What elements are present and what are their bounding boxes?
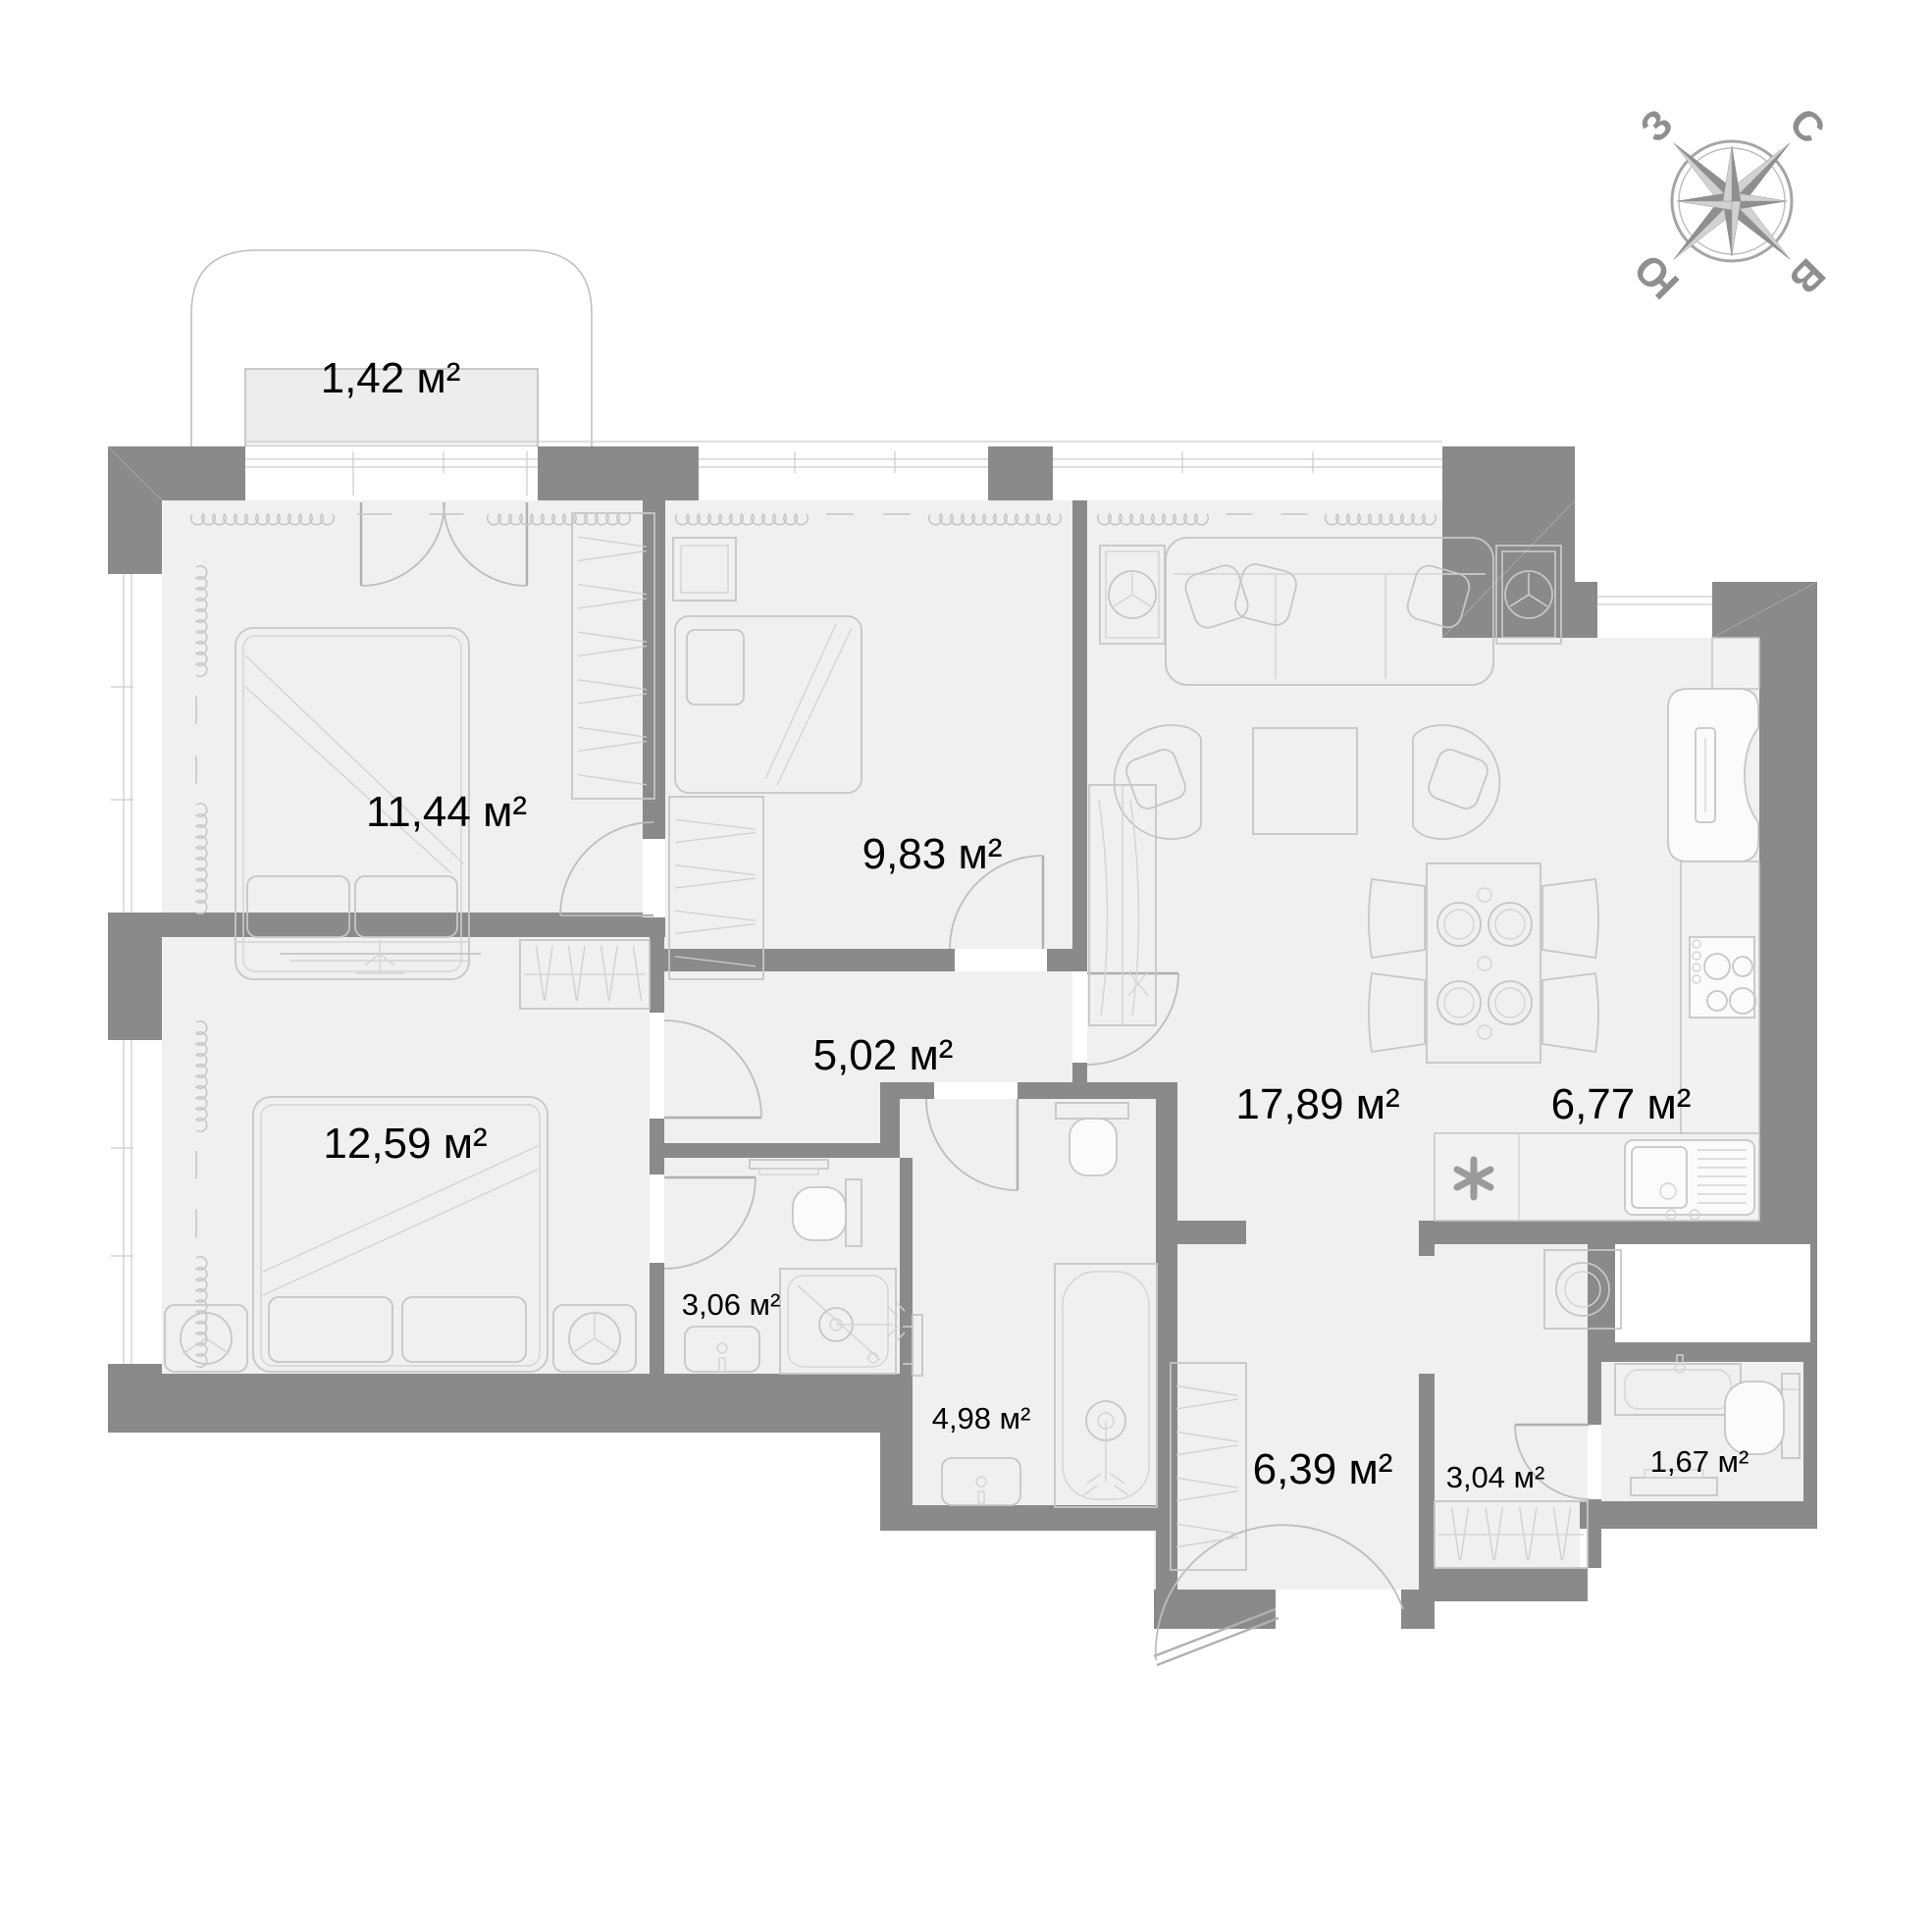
cooktop bbox=[1690, 937, 1755, 1018]
floor-plan-drawing: С В Ю З 1,42 м² 11,44 м² 9,83 м² 5,02 м²… bbox=[0, 0, 1932, 1932]
label-bedroom-3: 12,59 м² bbox=[323, 1120, 487, 1168]
fridge bbox=[1668, 689, 1758, 862]
label-entrance-hall: 6,39 м² bbox=[1253, 1445, 1393, 1493]
label-bathroom: 4,98 м² bbox=[932, 1401, 1031, 1436]
window-bedroom-1-left bbox=[108, 574, 162, 913]
counter-right bbox=[1681, 862, 1759, 1133]
label-laundry: 3,04 м² bbox=[1446, 1460, 1545, 1494]
floor-plan: С В Ю З 1,42 м² 11,44 м² 9,83 м² 5,02 м²… bbox=[0, 0, 1932, 1932]
label-shower-room: 3,06 м² bbox=[682, 1287, 781, 1322]
window-balcony-door bbox=[245, 446, 538, 500]
balcony bbox=[191, 250, 592, 446]
window-bedroom-3-left bbox=[108, 1040, 162, 1364]
label-living-room: 17,89 м² bbox=[1235, 1080, 1399, 1128]
kitchen-sink bbox=[1625, 1140, 1754, 1220]
window-bedroom-2 bbox=[699, 446, 988, 500]
label-hallway: 5,02 м² bbox=[813, 1031, 954, 1079]
label-bedroom-2: 9,83 м² bbox=[862, 830, 1003, 878]
counter-bottom bbox=[1435, 1133, 1759, 1221]
counter-top-piece bbox=[1712, 638, 1759, 689]
label-balcony: 1,42 м² bbox=[321, 354, 461, 402]
label-bedroom-1: 11,44 м² bbox=[366, 788, 527, 836]
label-kitchen: 6,77 м² bbox=[1551, 1080, 1692, 1128]
window-living-room bbox=[1053, 446, 1442, 500]
compass-rose: С В Ю З bbox=[1625, 99, 1834, 308]
window-kitchen bbox=[1597, 582, 1712, 638]
label-wc: 1,67 м² bbox=[1650, 1444, 1749, 1479]
